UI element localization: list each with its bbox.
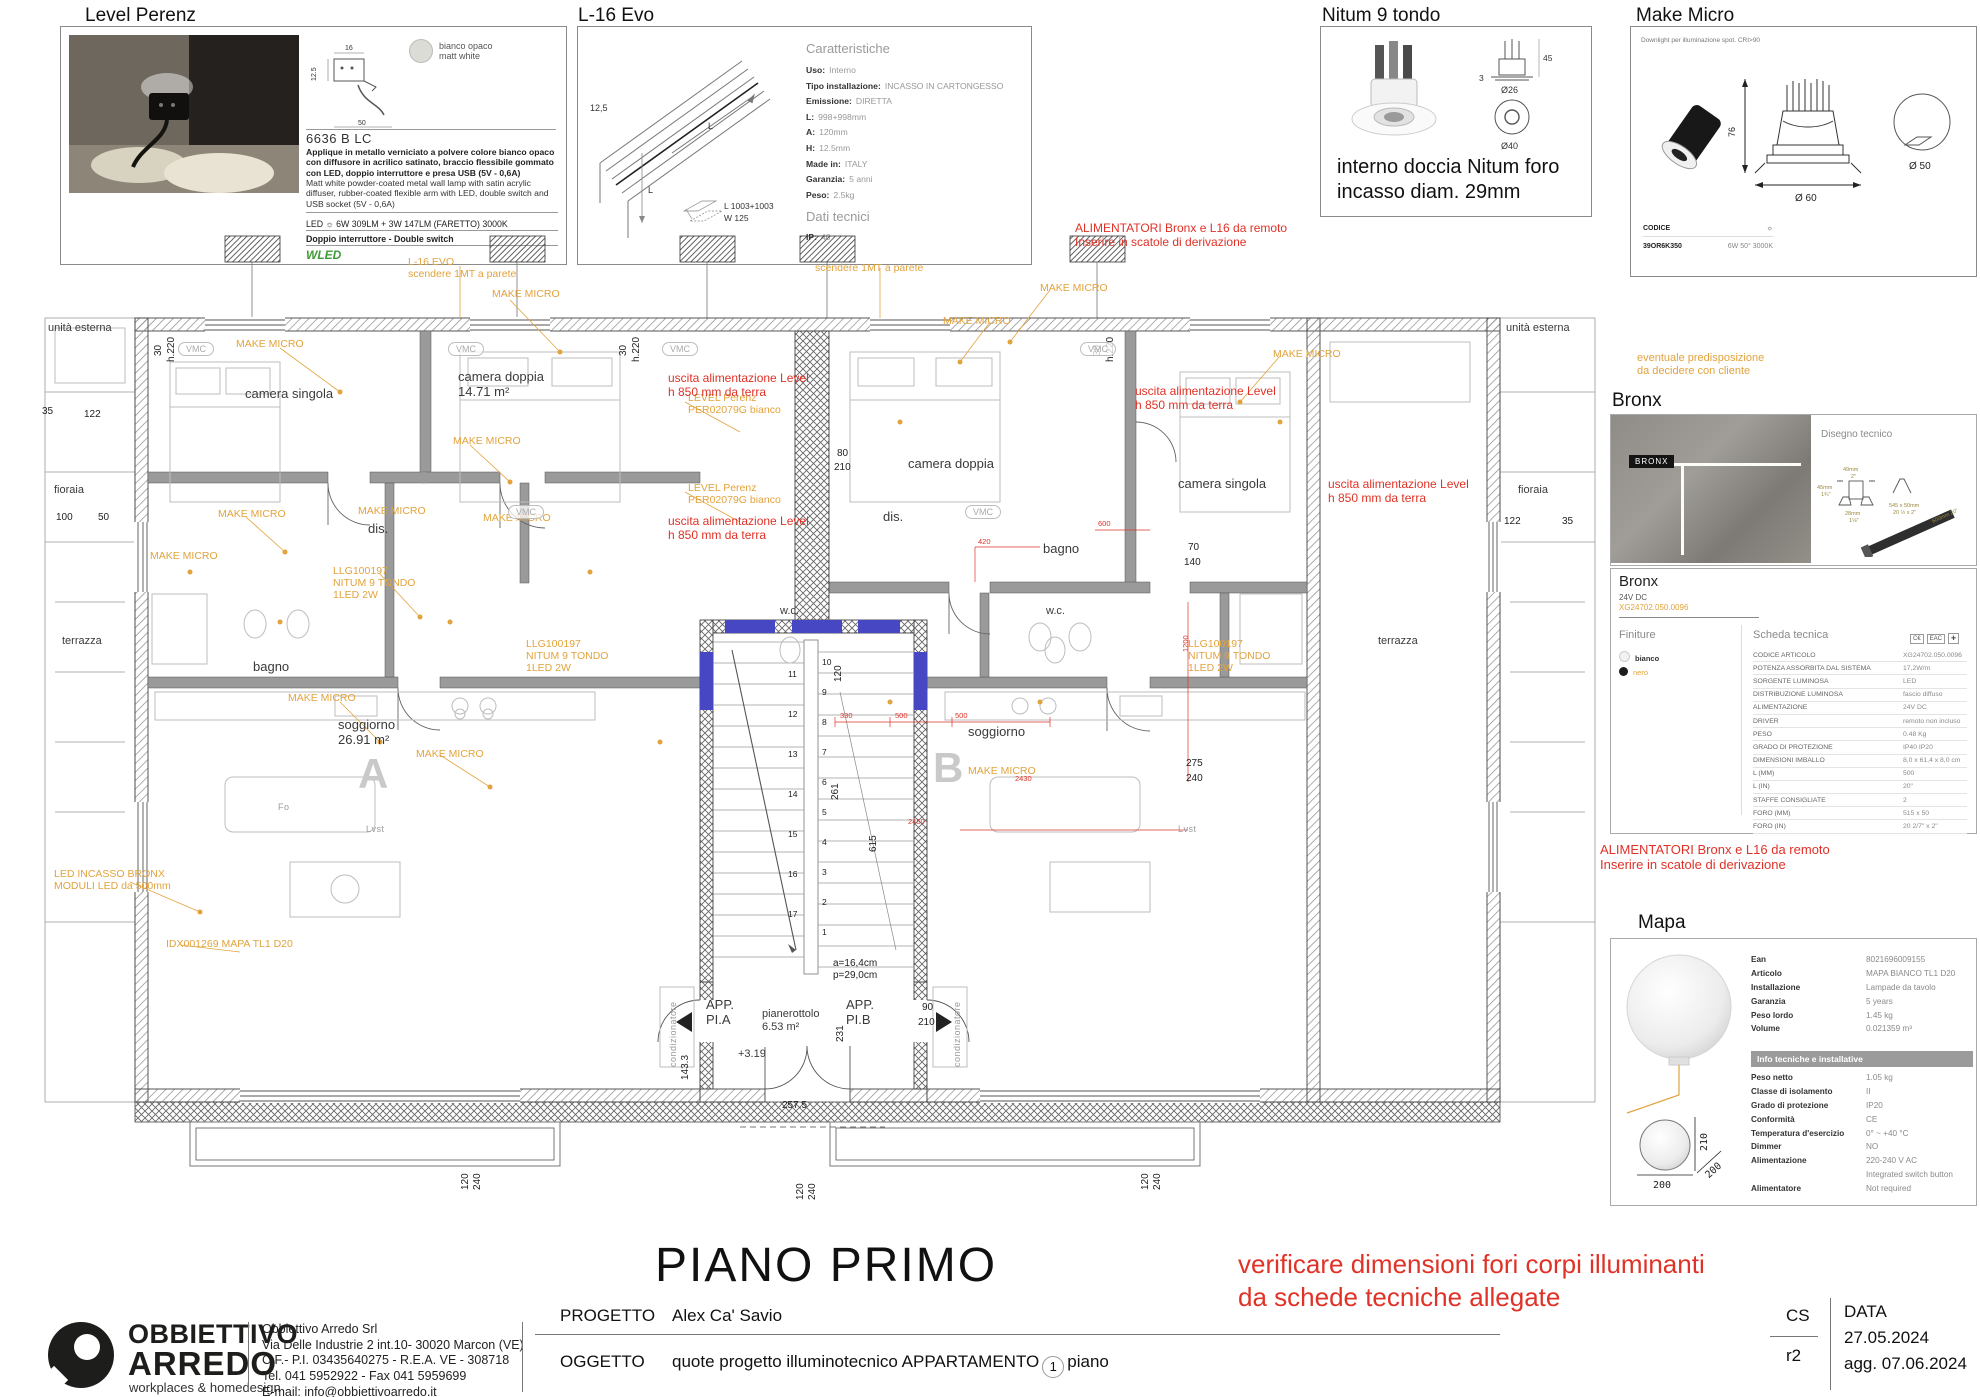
plan-annotation-orange: MAKE MICRO [236, 338, 304, 350]
finish-swatch [409, 39, 433, 63]
dimension-label: 261 [830, 783, 842, 800]
table-row: Temperatura d'esercizio0° ~ +40 °C [1751, 1126, 1967, 1140]
table-row: DRIVERremoto non incluso [1753, 715, 1967, 728]
stair-step-number: 3 [822, 868, 827, 878]
svg-text:45: 45 [1543, 53, 1553, 63]
red-dimension-label: 600 [1098, 520, 1111, 529]
svg-text:1¾": 1¾" [1821, 492, 1831, 498]
vmc-badge: VMC [662, 342, 698, 356]
disegno-title: Disegno tecnico [1821, 429, 1892, 440]
red-dimension-label: 420 [978, 538, 991, 547]
spec-row: Tipo installazione:INCASSO IN CARTONGESS… [806, 81, 1024, 91]
svg-text:Ø40: Ø40 [1501, 141, 1518, 151]
table-row: L (MM)500 [1753, 768, 1967, 781]
table-row: Grado di protezioneIP20 [1751, 1099, 1967, 1113]
svg-text:16: 16 [345, 45, 353, 52]
dimension-label: 240 [472, 1173, 484, 1190]
caratteristiche-title: Caratteristiche [806, 41, 890, 56]
plan-label-gray: condizionatore [418, 418, 428, 484]
table-row: DIMENSIONI IMBALLO8,0 x 61,4 x 8,0 cm [1753, 755, 1967, 768]
table-row: POTENZA ASSORBITA DAL SISTEMA17,2W/m [1753, 662, 1967, 675]
sheet-title: PIANO PRIMO [655, 1238, 997, 1293]
red-dimension-label: 2450 [908, 818, 925, 827]
description-en: Matt white powder-coated metal wall lamp… [306, 178, 558, 209]
finitura-bianco: bianco [1619, 651, 1659, 663]
description-it: Applique in metallo verniciato a polvere… [306, 147, 558, 178]
room-label: camera doppia 14.71 m² [458, 370, 544, 400]
floor-badge: 1 [1042, 1356, 1064, 1378]
make-spec: 6W 50° 3000K [1728, 243, 1773, 250]
alimentatori-note: ALIMENTATORI Bronx e L16 da remoto Inser… [1600, 843, 1830, 873]
dimension-label: 122 [84, 409, 101, 421]
table-row: GRADO DI PROTEZIONEIP40 IP20 [1753, 741, 1967, 754]
make-micro-subtitle: Downlight per illuminazione spot. CRI>90 [1641, 37, 1760, 44]
drawing-sheet: Level Perenz L-16 Evo Nitum 9 tondo Make… [0, 0, 1980, 1397]
table-row: L (IN)20" [1753, 781, 1967, 794]
red-dimension-label: 2430 [1015, 775, 1032, 784]
room-label: pianerottolo 6.53 m² [762, 1008, 820, 1033]
dimension-label: 35 [1562, 516, 1573, 528]
vmc-badge: VMC [508, 505, 544, 519]
table-row: Peso netto1.05 kg [1751, 1071, 1967, 1085]
spec-row: Emissione:DIRETTA [806, 96, 1024, 106]
certification-marks: C€EAC✚ [1907, 627, 1959, 645]
dimension-label: 257.5 [782, 1100, 807, 1112]
table-row: ConformitàCE [1751, 1112, 1967, 1126]
plan-annotation-orange: LLG100197 NITUM 9 TONDO 1LED 2W [526, 638, 608, 674]
panel-mapa: 200 210 200 Ean8021696009155ArticoloMAPA… [1610, 938, 1977, 1206]
dimension-label: 231 [835, 1025, 847, 1042]
bronx-sheet-title: Bronx [1619, 573, 1658, 590]
dimension-label: 70 [1188, 542, 1199, 554]
table-row: Volume0.021359 m³ [1751, 1022, 1967, 1036]
dimension-label: 120 [795, 1183, 807, 1200]
dimension-label: 90 [922, 1002, 933, 1014]
svg-text:28mm: 28mm [1845, 511, 1861, 517]
dimension-label: 100 [56, 512, 73, 524]
panel-title-bronx: Bronx [1612, 390, 1662, 412]
panel-title-level-perenz: Level Perenz [85, 5, 196, 27]
stair-step-number: 6 [822, 778, 827, 788]
svg-text:20 ½ x 2": 20 ½ x 2" [1893, 509, 1916, 516]
svg-text:2": 2" [1851, 474, 1856, 480]
dimension-label: 240 [1152, 1173, 1164, 1190]
dimension-label: 143.3 [680, 1055, 692, 1080]
red-dimension-label: 1200 [1182, 635, 1191, 652]
stair-step-number: 11 [788, 670, 797, 680]
dimension-label: h.220 [631, 337, 643, 362]
spec-row: H:12.5mm [806, 143, 1024, 153]
dimension-label: 120 [1140, 1173, 1152, 1190]
room-label: APP. PI.B [846, 998, 874, 1028]
panel-title-l16: L-16 Evo [578, 5, 654, 27]
dimension-label: 30 [153, 345, 165, 356]
stair-step-number: 12 [788, 710, 797, 720]
plan-annotation-orange: MAKE MICRO [416, 748, 484, 760]
vmc-badge: VMC [965, 505, 1001, 519]
plan-annotation-orange: MAKE MICRO [453, 435, 521, 447]
dimension-label: 240 [807, 1183, 819, 1200]
table-row: ArticoloMAPA BIANCO TL1 D20 [1751, 967, 1967, 981]
level-perenz-photo [69, 35, 299, 193]
rev-code-bottom: r2 [1786, 1346, 1801, 1366]
plan-annotation-orange: MAKE MICRO [218, 508, 286, 520]
dimension-label: 615 [868, 835, 880, 852]
spec-row: Uso:Interno [806, 65, 1024, 75]
vmc-badge: VMC [1080, 342, 1116, 356]
plus-mark: ✚ [1948, 633, 1959, 644]
table-row: Ean8021696009155 [1751, 953, 1967, 967]
apartment-letter: A [358, 750, 388, 798]
plan-label-gray: condizionatore [952, 1001, 962, 1067]
panel-title-make-micro: Make Micro [1636, 5, 1734, 27]
stair-step-number: 17 [788, 910, 797, 920]
stair-step-number: 13 [788, 750, 797, 760]
svg-text:Ø 50: Ø 50 [1909, 161, 1931, 172]
stair-step-number: 15 [788, 830, 797, 840]
table-row: STAFFE CONSIGLIATE2 [1753, 794, 1967, 807]
room-label: bagno [1043, 542, 1079, 557]
room-label: soggiorno [968, 725, 1025, 740]
spec-row: Made in:ITALY [806, 159, 1024, 169]
svg-text:49mm: 49mm [1843, 467, 1859, 473]
panel-title-nitum: Nitum 9 tondo [1322, 5, 1440, 27]
room-label: soggiorno 26.91 m² [338, 718, 395, 748]
room-label: camera singola [245, 387, 333, 402]
dimension-label: 120 [460, 1173, 472, 1190]
stair-step-number: 16 [788, 870, 797, 880]
svg-text:76: 76 [1727, 127, 1737, 137]
plan-annotation-red: uscita alimentazione Level h 850 mm da t… [1135, 385, 1276, 413]
plan-annotation-orange: MAKE MICRO [1040, 282, 1108, 294]
company-name-2: ARREDO [128, 1348, 277, 1379]
dimension-label: p=29,0cm [833, 970, 877, 982]
date-value: 27.05.2024 [1844, 1328, 1929, 1348]
room-label: camera doppia [908, 457, 994, 472]
product-code: 6636 B LC [306, 131, 372, 146]
stair-step-number: 2 [822, 898, 827, 908]
svg-text:210: 210 [1699, 1133, 1710, 1151]
mapa-info-header: Info tecniche e installative [1751, 1051, 1973, 1067]
dimension-label: a=16,4cm [833, 958, 877, 970]
stair-step-number: 1 [822, 928, 827, 938]
table-row: Peso lordo1.45 kg [1751, 1008, 1967, 1022]
plan-annotation-red: ALIMENTATORI Bronx e L16 da remoto Inser… [1075, 222, 1287, 250]
progetto-value: Alex Ca' Savio [672, 1306, 782, 1326]
room-label: terrazza [1378, 635, 1418, 648]
room-label: dis. [883, 510, 903, 525]
ce-mark: C€ [1910, 634, 1924, 644]
table-row: InstallazioneLampade da tavolo [1751, 981, 1967, 995]
stair-step-number: 8 [822, 718, 827, 728]
plan-annotation-orange: MAKE MICRO [150, 550, 218, 562]
plan-label-gray: Fo [278, 802, 290, 812]
dimension-label: 122 [1504, 516, 1521, 528]
plan-annotation-orange: MAKE MICRO [943, 315, 1011, 327]
scheda-title: Scheda tecnica [1753, 629, 1828, 641]
table-row: DISTRIBUZIONE LUMINOSAfascio diffuso [1753, 689, 1967, 702]
red-dimension-label: 330 [840, 712, 853, 721]
red-dimension-label: 500 [955, 712, 968, 721]
bronx-disegno: Disegno tecnico 49mm 2" 45mm 1¾" 28mm 1⅛… [1811, 415, 1975, 563]
red-dimension-label: 500 [895, 712, 908, 721]
vmc-badge: VMC [448, 342, 484, 356]
nitum-dimension-drawing: 45 3 Ø26 Ø40 [1471, 33, 1583, 155]
svg-text:Ø26: Ø26 [1501, 85, 1518, 95]
stair-step-number: 7 [822, 748, 827, 758]
spec-row: Peso:2.5kg [806, 190, 1024, 200]
room-label: bagno [253, 660, 289, 675]
plan-annotation-orange: MAKE MICRO [288, 692, 356, 704]
svg-text:12,5: 12,5 [590, 103, 608, 113]
vmc-badge: VMC [178, 342, 214, 356]
make-micro-drawing: 76 Ø 60 Ø 50 [1637, 67, 1970, 217]
svg-text:3: 3 [1479, 73, 1484, 83]
plan-annotation-orange: LED INCASSO BRONX MODULI LED da 500mm [54, 868, 171, 892]
plan-annotation-orange: IDX001269 MAPA TL1 D20 [166, 938, 293, 950]
table-row: SORGENTE LUMINOSALED [1753, 675, 1967, 688]
lamp-icon: ☼ [1767, 225, 1773, 232]
table-row: AlimentatoreNot required [1751, 1181, 1967, 1195]
table-row: DimmerNO [1751, 1140, 1967, 1154]
svg-text:50: 50 [358, 120, 366, 127]
spec-row: A:120mm [806, 127, 1024, 137]
codice-row: 39OR6K350 6W 50° 3000K [1643, 243, 1773, 250]
room-label: fioraia [54, 484, 84, 497]
stair-step-number: 9 [822, 688, 827, 698]
spec-row: Garanzia:5 anni [806, 174, 1024, 184]
panel-bronx-photo: BRONX Disegno tecnico 49mm 2" 45mm 1¾" 2… [1610, 414, 1977, 566]
stair-step-number: 14 [788, 790, 797, 800]
room-label: camera singola [1178, 477, 1266, 492]
svg-text:1⅛": 1⅛" [1849, 518, 1859, 524]
plan-annotation-red: uscita alimentazione Level h 850 mm da t… [668, 515, 809, 543]
oggetto-value: quote progetto illuminotecnico APPARTAME… [672, 1352, 1109, 1378]
panel-bronx-sheet: Bronx 24V DC XG24702.050.0096 Finiture b… [1610, 568, 1977, 834]
stair-step-number: 4 [822, 838, 827, 848]
predisposizione-note: eventuale predisposizione da decidere co… [1637, 352, 1764, 377]
plan-annotation-orange: LEVEL Perenz PER02079G bianco [688, 482, 781, 506]
oggetto-label: OGGETTO [560, 1352, 645, 1372]
make-code: 39OR6K350 [1643, 243, 1682, 250]
dimension-label: 80 [837, 448, 848, 460]
plan-label-gray: Lvst [366, 824, 385, 834]
stair-step-number: 10 [822, 658, 831, 668]
floor-plan: camera singolacamera doppia 14.71 m²came… [40, 222, 1600, 1238]
apartment-letter: B [933, 744, 963, 792]
plan-annotation-red: uscita alimentazione Level h 850 mm da t… [668, 372, 809, 400]
rev-code-top: CS [1786, 1306, 1810, 1326]
bronx-voltage: 24V DC [1619, 593, 1647, 602]
plan-annotation-orange: LLG100197 NITUM 9 TONDO 1LED 2W [333, 565, 415, 601]
plan-label-gray: Lvst [1178, 824, 1197, 834]
plan-annotation-orange: LLG100197 NITUM 9 TONDO 1LED 2W [1188, 638, 1270, 674]
company-tagline: workplaces & homedesign [129, 1380, 281, 1395]
table-row: Alimentazione220-240 V AC [1751, 1154, 1967, 1168]
bronx-photo: BRONX [1611, 415, 1811, 563]
bronx-spec-table: CODICE ARTICOLOXG24702.050.0096POTENZA A… [1753, 649, 1967, 834]
room-label: w.c. [780, 605, 799, 618]
table-row: Classe di isolamentoII [1751, 1085, 1967, 1099]
panel-title-mapa: Mapa [1638, 912, 1686, 934]
dimension-label: 240 [1186, 773, 1203, 785]
plan-annotation-red: uscita alimentazione Level h 850 mm da t… [1328, 478, 1469, 506]
svg-text:L: L [708, 121, 713, 131]
room-label: terrazza [62, 635, 102, 648]
svg-text:L 1003+1003: L 1003+1003 [724, 201, 774, 211]
company-logo [48, 1322, 114, 1388]
date-updated: agg. 07.06.2024 [1844, 1354, 1967, 1374]
table-row: FORO (MM)515 x 50 [1753, 807, 1967, 820]
room-label: unità esterna [1506, 322, 1570, 335]
company-address: Obbiettivo Arredo Srl Via Delle Industri… [262, 1322, 524, 1397]
plan-annotation-orange: scendere 1MT a parete [815, 262, 923, 274]
svg-text:Ø 60: Ø 60 [1795, 193, 1817, 204]
svg-text:200: 200 [1653, 1180, 1671, 1191]
panel-make-micro: Downlight per illuminazione spot. CRI>90… [1630, 26, 1977, 277]
mapa-table-1: Ean8021696009155ArticoloMAPA BIANCO TL1 … [1751, 953, 1967, 1036]
plan-annotation-orange: L-16 EVO scendere 1MT a parete [408, 256, 516, 280]
svg-text:200: 200 [1703, 1161, 1724, 1181]
svg-text:45mm: 45mm [1817, 485, 1833, 491]
finish-label: bianco opaco matt white [439, 41, 493, 61]
finitura-nero: nero [1619, 667, 1648, 677]
plan-annotation-orange: MAKE MICRO [358, 505, 426, 517]
stair-step-number: 5 [822, 808, 827, 818]
dimension-label: 120 [833, 665, 845, 682]
verification-warning: verificare dimensioni fori corpi illumin… [1238, 1248, 1705, 1313]
plan-annotation-orange: MAKE MICRO [1273, 348, 1341, 360]
dimension-label: 30 [618, 345, 630, 356]
table-row: ALIMENTAZIONE24V DC [1753, 702, 1967, 715]
room-label: +3.19 [738, 1048, 766, 1061]
bronx-code-orange: XG24702.050.0096 [1619, 603, 1688, 612]
table-row: CODICE ARTICOLOXG24702.050.0096 [1753, 649, 1967, 662]
data-label: DATA [1844, 1302, 1887, 1322]
dimension-label: 140 [1184, 557, 1201, 569]
dimension-label: h.220 [166, 337, 178, 362]
panel-nitum: 45 3 Ø26 Ø40 interno doccia Nitum foro i… [1320, 26, 1592, 217]
svg-text:545 x 50mm: 545 x 50mm [1889, 503, 1920, 509]
eac-mark: EAC [1927, 634, 1945, 644]
table-row: Garanzia5 years [1751, 994, 1967, 1008]
plan-label-layer: camera singolacamera doppia 14.71 m²came… [40, 222, 1600, 1238]
l16-spec-list: Uso:InternoTipo installazione:INCASSO IN… [806, 65, 1024, 205]
codice-header: CODICE☼ [1643, 225, 1773, 237]
dimension-label: 210 [918, 1017, 935, 1029]
room-label: dis. [368, 522, 388, 537]
room-label: APP. PI.A [706, 998, 734, 1028]
dimension-label: 210 [834, 462, 851, 474]
room-label: unità esterna [48, 322, 112, 335]
dimension-label: 35 [42, 406, 53, 418]
table-row: PESO0.48 Kg [1753, 728, 1967, 741]
finiture-title: Finiture [1619, 629, 1656, 641]
level-perenz-diagram: 16 12.5 50 [306, 41, 406, 133]
nitum-note: interno doccia Nitum foro incasso diam. … [1337, 155, 1559, 205]
table-row: Integrated switch button [1751, 1167, 1967, 1181]
room-label: w.c. [1046, 605, 1065, 618]
nitum-photo [1329, 33, 1459, 153]
svg-text:L: L [648, 185, 653, 195]
plan-annotation-orange: MAKE MICRO [492, 288, 560, 300]
mapa-photo: 200 210 200 [1617, 945, 1742, 1199]
mapa-table-2: Peso netto1.05 kgClasse di isolamentoIIG… [1751, 1071, 1967, 1195]
spec-row: L:998+998mm [806, 112, 1024, 122]
svg-text:12.5: 12.5 [311, 67, 318, 81]
dimension-label: 50 [98, 512, 109, 524]
dimension-label: 275 [1186, 758, 1203, 770]
progetto-label: PROGETTO [560, 1306, 655, 1326]
room-label: fioraia [1518, 484, 1548, 497]
bronx-tag: BRONX [1629, 455, 1674, 468]
plan-label-gray: condizionatore [668, 1001, 678, 1067]
table-row: FORO (IN)20 2/7" x 2" [1753, 820, 1967, 833]
